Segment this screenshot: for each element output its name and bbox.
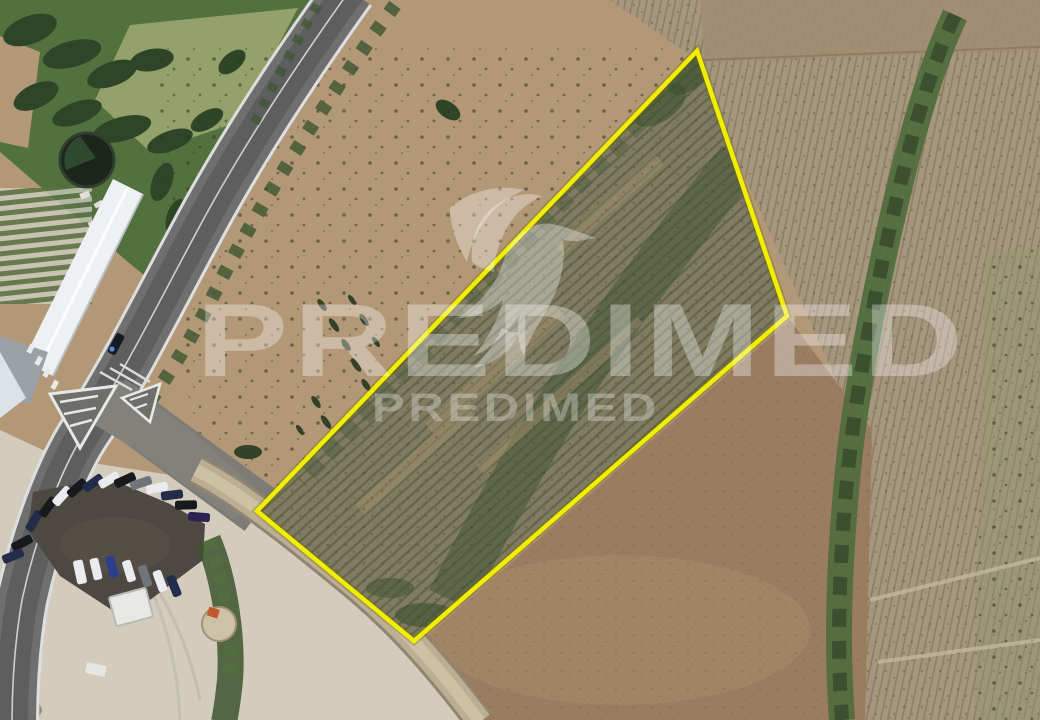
car <box>188 512 211 523</box>
satellite-image: PREDIMED PREDIMED <box>0 0 1040 720</box>
satellite-scene: PREDIMED PREDIMED <box>0 0 1040 720</box>
car <box>175 500 197 510</box>
